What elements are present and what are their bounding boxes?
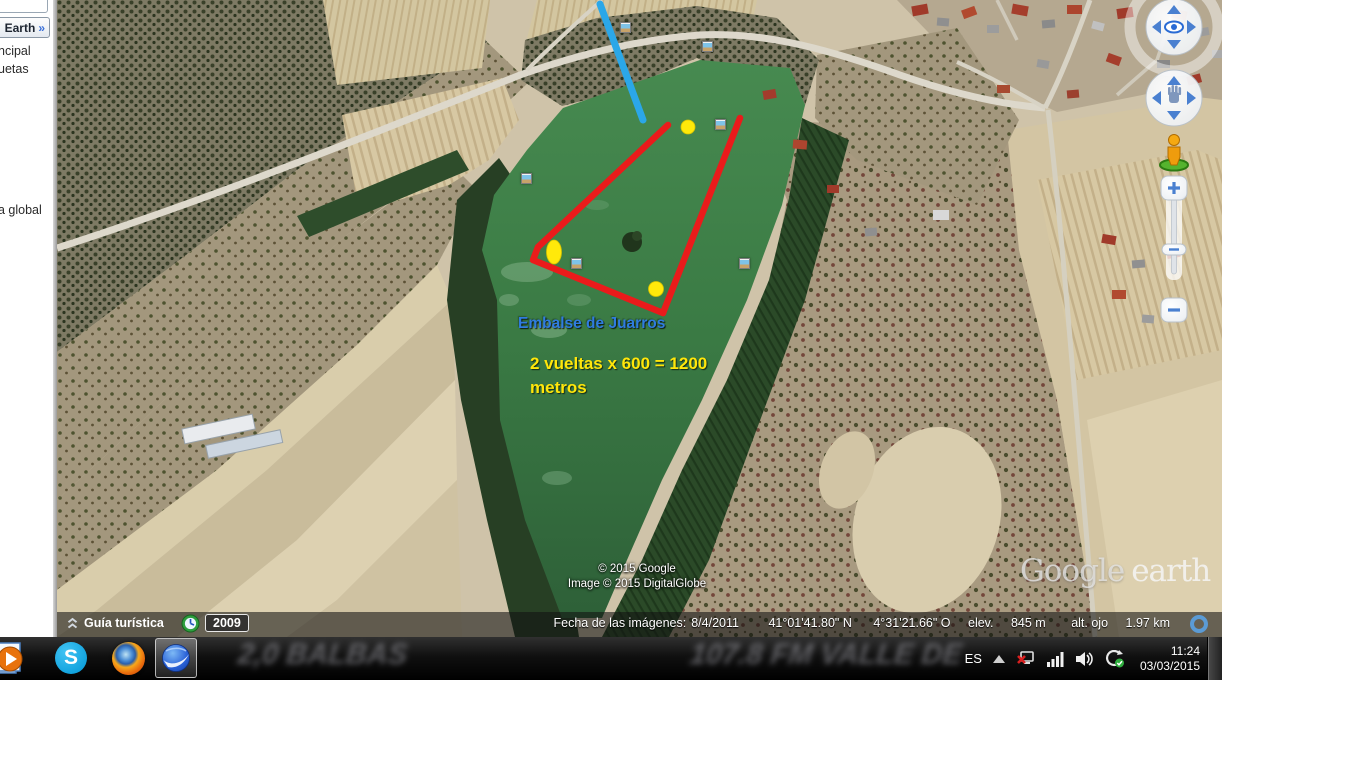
google-earth-3d-viewport[interactable]: Embalse de Juarros 2 vueltas x 600 = 120… — [57, 0, 1222, 637]
look-joystick[interactable] — [1146, 0, 1202, 55]
status-readout: Fecha de las imágenes:8/4/2011 41°01'41.… — [554, 616, 1170, 630]
collapse-chevrons-icon — [67, 617, 78, 629]
clock-date: 03/03/2015 — [1140, 659, 1200, 674]
imagery-year-badge[interactable]: 2009 — [205, 614, 249, 632]
imagery-date-label: Fecha de las imágenes: — [554, 616, 687, 630]
media-player-taskbar-icon[interactable] — [0, 642, 22, 676]
photo-icon[interactable] — [620, 22, 631, 33]
firefox-taskbar-icon[interactable] — [112, 642, 146, 676]
photo-icon[interactable] — [702, 41, 713, 52]
copyright-line1: © 2015 Google — [507, 562, 767, 577]
google-earth-globe-icon — [160, 642, 192, 674]
zoom-out-button[interactable] — [1161, 298, 1187, 322]
distance-note: 2 vueltas x 600 = 1200 metros — [530, 352, 707, 400]
wallpaper-text-2: 107.8 FM VALLE DE — [688, 639, 963, 672]
skype-taskbar-icon[interactable]: S — [55, 642, 89, 676]
sidebar-item-global[interactable]: a global — [0, 203, 42, 217]
sidebar-divider — [53, 0, 57, 637]
hidden-icons-arrow[interactable] — [993, 655, 1005, 663]
reservoir-label: Embalse de Juarros — [518, 315, 665, 333]
network-disconnected-icon[interactable] — [1016, 650, 1036, 668]
search-panel-edge — [0, 0, 48, 13]
copyright-line2: Image © 2015 DigitalGlobe — [507, 577, 767, 592]
distance-note-line2: metros — [530, 376, 707, 400]
earth-gallery-button[interactable]: Earth » — [0, 17, 50, 38]
wallpaper-text-1: 2,0 BALBAS — [236, 639, 409, 672]
historical-imagery-icon[interactable] — [181, 614, 200, 633]
windows-taskbar: 2,0 BALBAS 107.8 FM VALLE DE S — [0, 637, 1222, 680]
placemark-west[interactable] — [547, 240, 562, 264]
clock-time: 11:24 — [1140, 644, 1200, 659]
zoom-slider-handle[interactable] — [1162, 244, 1186, 255]
distance-note-line1: 2 vueltas x 600 = 1200 — [530, 352, 707, 376]
volume-icon[interactable] — [1076, 651, 1094, 667]
sync-status-icon[interactable] — [1105, 650, 1125, 668]
show-desktop-button[interactable] — [1207, 637, 1222, 680]
move-joystick[interactable] — [1146, 70, 1202, 126]
placemark-north[interactable] — [681, 120, 695, 134]
skype-letter: S — [64, 646, 78, 670]
signal-strength-icon[interactable] — [1047, 651, 1065, 667]
photo-icon[interactable] — [739, 258, 750, 269]
photo-icon[interactable] — [571, 258, 582, 269]
sidebar-item-etiquetas[interactable]: uetas — [0, 62, 29, 76]
streaming-indicator-icon — [1190, 615, 1208, 633]
tour-guide-label: Guía turística — [84, 616, 164, 630]
sidebar-panel: Earth » ncipal uetas a global — [0, 0, 57, 637]
imagery-copyright: © 2015 Google Image © 2015 DigitalGlobe — [507, 562, 767, 592]
elevation-label: elev. — [968, 616, 993, 630]
earth-button-chevron: » — [38, 21, 45, 35]
pegman-icon[interactable] — [1160, 135, 1188, 171]
imagery-date-value: 8/4/2011 — [691, 616, 739, 630]
photo-icon[interactable] — [715, 119, 726, 130]
eye-altitude-label: alt. ojo — [1071, 616, 1108, 630]
photo-icon[interactable] — [521, 173, 532, 184]
watermark-earth: earth — [1131, 553, 1210, 589]
viewport-status-bar: Guía turística 2009 Fecha de las imágene… — [57, 612, 1222, 637]
google-earth-taskbar-button[interactable] — [155, 638, 197, 678]
language-indicator[interactable]: ES — [965, 651, 982, 666]
watermark-google: Google — [1020, 553, 1124, 589]
zoom-in-button[interactable] — [1161, 176, 1187, 200]
eye-altitude-value: 1.97 km — [1126, 616, 1170, 630]
latitude-value: 41°01'41.80" N — [768, 616, 851, 630]
elevation-value: 845 m — [1011, 616, 1046, 630]
placemark-south[interactable] — [649, 282, 664, 297]
earth-button-label: Earth — [5, 21, 36, 35]
zoom-control[interactable] — [1161, 176, 1187, 322]
desktop-screen: Embalse de Juarros 2 vueltas x 600 = 120… — [0, 0, 1366, 768]
tour-guide-toggle[interactable]: Guía turística — [67, 616, 164, 630]
sidebar-item-principal[interactable]: ncipal — [0, 44, 31, 58]
system-tray: ES — [965, 637, 1200, 680]
taskbar-clock[interactable]: 11:24 03/03/2015 — [1140, 644, 1200, 674]
eye-icon — [1165, 22, 1183, 33]
google-earth-watermark: Googleearth — [1020, 553, 1210, 589]
longitude-value: 4°31'21.66" O — [873, 616, 950, 630]
